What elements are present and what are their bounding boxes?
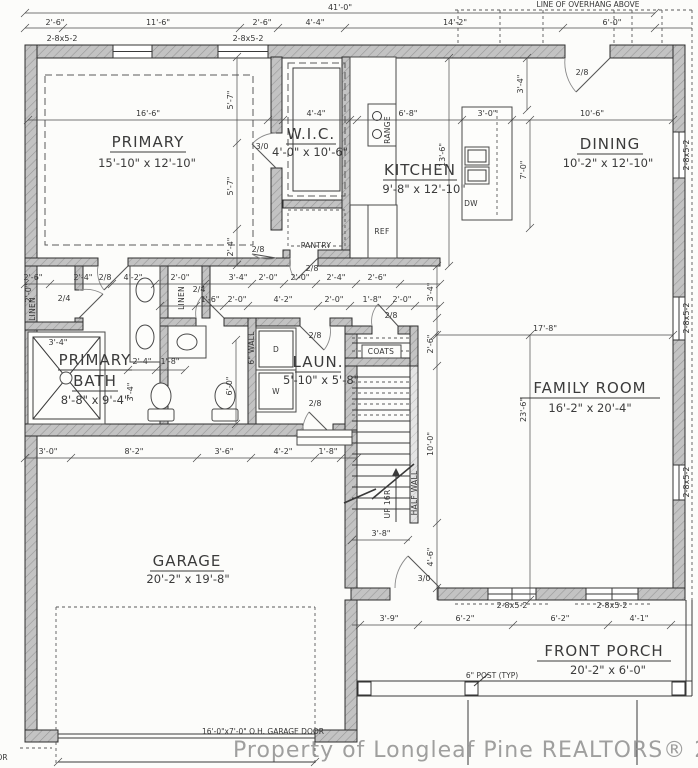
up-label: UP 16R <box>383 490 392 519</box>
window-label: 2-8x5-2 <box>682 140 691 171</box>
room-size-dining: 10'-2" x 12'-10" <box>563 156 654 170</box>
dimension-label: 2'-4" <box>133 357 152 366</box>
dimension-label: 2'-4" <box>327 273 346 282</box>
dimension-label: 3'-4" <box>229 273 248 282</box>
dimension-label: 2'-6" <box>368 273 387 282</box>
dimension-label: 4'-2" <box>274 447 293 456</box>
overhang-note: LINE OF OVERHANG ABOVE <box>537 0 640 9</box>
door-label: 2/8 <box>576 68 589 77</box>
dimension-label: 17'-8" <box>533 324 557 333</box>
dimension-label: 16'-6" <box>136 109 160 118</box>
dimension-label: 23'-6" <box>519 398 528 422</box>
room-name-kitchen: KITCHEN <box>384 161 456 179</box>
room-name-primary-bath-2: BATH <box>73 372 117 390</box>
dimension-label: 4'-2" <box>124 273 143 282</box>
post-note: 6" POST (TYP) <box>466 671 518 680</box>
door-label: 2/4 <box>58 294 71 303</box>
room-name-family: FAMILY ROOM <box>533 379 646 397</box>
linen-label: LINEN <box>28 297 37 321</box>
dimension-label: 2'-6" <box>253 18 272 27</box>
room-name-primary-bath-1: PRIMARY <box>59 351 132 369</box>
watermark: Property of Longleaf Pine REALTORS® 2020 <box>233 738 698 763</box>
door-label: 3/0 <box>256 142 269 151</box>
dimension-label: 2'-0" <box>393 295 412 304</box>
dimension-label: 1'-8" <box>319 447 338 456</box>
dimension-label: 3'-4" <box>516 75 525 94</box>
garage-door-note: 16'-0"x7'-0" O.H. GARAGE DOOR <box>202 727 324 736</box>
room-name-porch: FRONT PORCH <box>544 642 663 660</box>
dimension-label: 6'-8" <box>399 109 418 118</box>
dimension-label: 5'-7" <box>226 177 235 196</box>
ref-label: REF <box>374 227 389 236</box>
window-label: 2-8x5-2 <box>682 467 691 498</box>
room-size-wic: 4'-0" x 10'-6" <box>272 145 348 159</box>
dw-label: DW <box>464 199 478 208</box>
room-name-wic: W.I.C. <box>287 125 335 143</box>
window-label: 2-8x5-2 <box>497 601 528 610</box>
dimension-label: 14'-2" <box>443 18 467 27</box>
dimension-label: 2'-4" <box>74 273 93 282</box>
window-label: 2-8x5-2 <box>597 601 628 610</box>
dimension-label: 2'-0" <box>228 295 247 304</box>
window-label: 2-8x5-2 <box>47 34 78 43</box>
dimension-label: 4'-6" <box>426 548 435 567</box>
door-label: 2/8 <box>309 399 322 408</box>
dimension-label: 2'-6" <box>24 273 43 282</box>
pantry-label: PANTRY <box>301 241 332 250</box>
dimension-label: 1'-8" <box>363 295 382 304</box>
dimension-label: 7'-0" <box>519 161 528 180</box>
dimension-label: 3'-4" <box>426 283 435 302</box>
dimension-label: 4'-4" <box>306 18 325 27</box>
dimension-label: 5'-7" <box>226 91 235 110</box>
range-label: RANGE <box>383 116 392 144</box>
dimension-label: 2'-0" <box>291 273 310 282</box>
dimension-label: 10'-6" <box>580 109 604 118</box>
dimension-label: 11'-6" <box>146 18 170 27</box>
dimension-label: 2'-6" <box>46 18 65 27</box>
dimension-label: 6'-0" <box>225 377 234 396</box>
dimension-label: 4'-2" <box>274 295 293 304</box>
dimension-label: 3'-8" <box>372 529 391 538</box>
window-label: 2-8x5-2 <box>682 303 691 334</box>
washer-label: W <box>272 387 280 396</box>
room-size-primary-bath: 8'-8" x 9'-4" <box>61 393 130 407</box>
dimension-label: 6'-0" <box>603 18 622 27</box>
door-label: 2/8 <box>306 264 319 273</box>
window-label: 2-8x5-2 <box>233 34 264 43</box>
dimension-label: 41'-0" <box>328 3 352 12</box>
room-size-garage: 20'-2" x 19'-8" <box>146 572 229 586</box>
room-size-family: 16'-2" x 20'-4" <box>548 401 631 415</box>
dimension-label: 2'-0" <box>259 273 278 282</box>
dimension-label: 1'-8" <box>161 357 180 366</box>
floor-plan-page: 41'-0" 2'-6" 11'-6" 2'-6" 4'-4" 14'-2" 6… <box>0 0 698 768</box>
coats-label: COATS <box>368 347 394 356</box>
dimension-label: 3'-0" <box>39 447 58 456</box>
dimension-label: 1'-6" <box>201 295 220 304</box>
linen-label: LINEN <box>177 286 186 310</box>
dimension-label: 8'-2" <box>125 447 144 456</box>
door-label: 3/0 <box>418 574 431 583</box>
door-label: 2/4 <box>193 285 206 294</box>
room-name-laundry: LAUN. <box>293 353 344 371</box>
room-size-porch: 20'-2" x 6'-0" <box>570 663 646 677</box>
room-size-primary: 15'-10" x 12'-10" <box>98 156 196 170</box>
room-size-kitchen: 9'-8" x 12'-10" <box>382 182 465 196</box>
dryer-label: D <box>273 345 279 354</box>
dimension-label: 2'-4" <box>226 238 235 257</box>
door-label: 2/8 <box>252 245 265 254</box>
dimension-label: 10'-0" <box>426 432 435 456</box>
six-wall-label: 6" WALL <box>247 331 256 365</box>
dimension-label: 6'-2" <box>551 614 570 623</box>
windows <box>113 45 685 604</box>
dimension-label: 3'-6" <box>215 447 234 456</box>
half-wall-label: HALF WALL <box>410 470 419 515</box>
dimension-label: 6'-2" <box>456 614 475 623</box>
door-label: 2/8 <box>309 331 322 340</box>
dimension-label: 3'-9" <box>380 614 399 623</box>
dimension-label: 4'-1" <box>630 614 649 623</box>
room-size-laundry: 5'-10" x 5'-8" <box>283 373 359 387</box>
note-fragment: OR <box>0 753 8 762</box>
dimension-label: 2'-6" <box>426 335 435 354</box>
room-name-dining: DINING <box>580 135 640 153</box>
room-name-primary: PRIMARY <box>112 133 185 151</box>
door-label: 2/8 <box>385 311 398 320</box>
dimension-label: 3'-4" <box>49 338 68 347</box>
dimension-label: 2'-0" <box>325 295 344 304</box>
room-name-garage: GARAGE <box>153 552 222 570</box>
dimension-label: 4'-4" <box>307 109 326 118</box>
dimension-label: 2'-0" <box>171 273 190 282</box>
door-label: 2/8 <box>99 273 112 282</box>
dimension-label: 3'-0" <box>478 109 497 118</box>
floor-plan-svg: 41'-0" 2'-6" 11'-6" 2'-6" 4'-4" 14'-2" 6… <box>0 0 698 768</box>
